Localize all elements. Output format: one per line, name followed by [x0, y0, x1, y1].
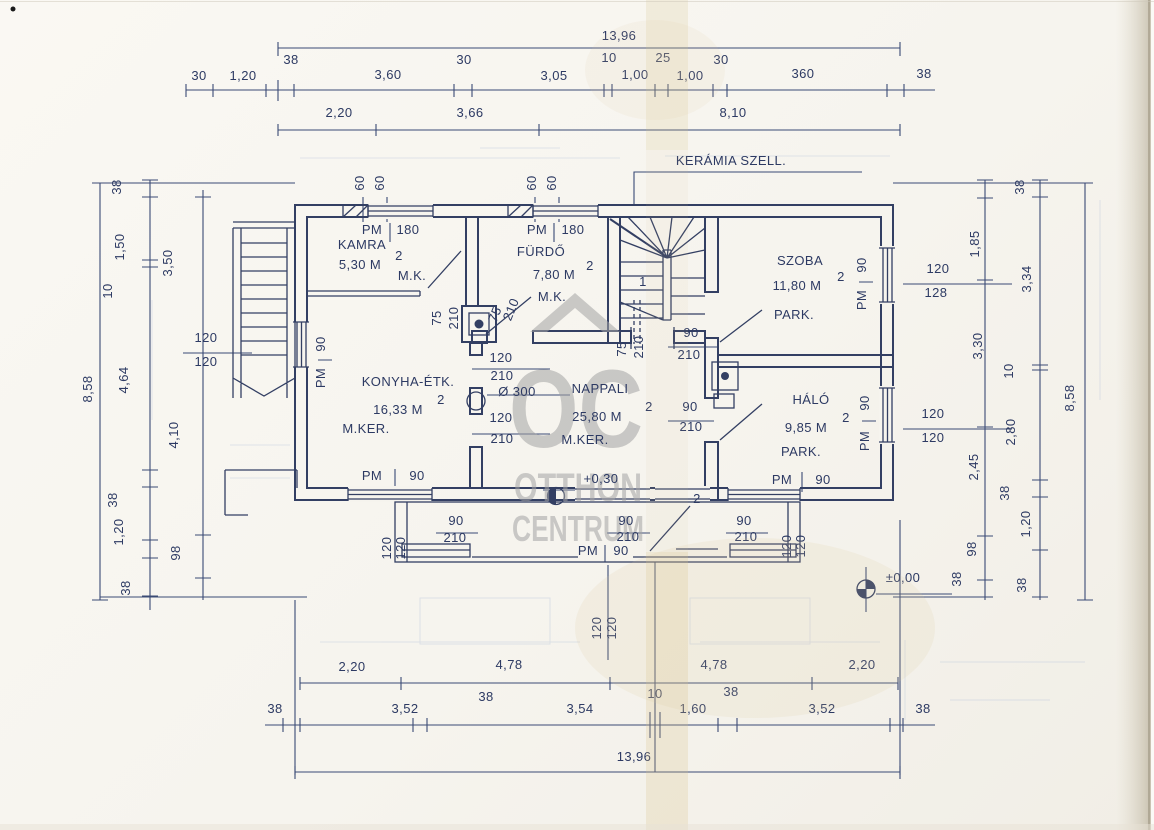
- room-floor-konyha: M.KER.: [342, 421, 389, 436]
- room-area-kamra: 5,30 M: [339, 257, 381, 272]
- sup: 2: [842, 410, 850, 425]
- dim-label: 38: [997, 485, 1012, 500]
- dim-label: 180: [397, 222, 420, 237]
- dim-label: 2,20: [326, 105, 353, 120]
- dim-label: PM: [362, 222, 382, 237]
- dim-label: 120: [393, 537, 408, 560]
- dim-label: 38: [1014, 577, 1029, 592]
- room-name-szoba: SZOBA: [777, 253, 823, 268]
- dim-label: 2,20: [339, 659, 366, 674]
- room-floor-furdo: M.K.: [538, 289, 566, 304]
- dim-label: 90: [409, 468, 424, 483]
- dim-label: PM: [313, 368, 328, 388]
- dim-label: 3,66: [457, 105, 484, 120]
- dim-label: 90: [613, 543, 628, 558]
- dim-label: 120: [195, 354, 218, 369]
- stair-number: 1: [639, 274, 647, 289]
- dim-label: 60: [544, 175, 559, 190]
- room-area-furdo: 7,80 M: [533, 267, 575, 282]
- room-area-halo: 9,85 M: [785, 420, 827, 435]
- dim-label: PM: [857, 431, 872, 451]
- dim-label: 90: [313, 336, 328, 351]
- room-floor-halo: PARK.: [781, 444, 821, 459]
- dim-label: 3,52: [392, 701, 419, 716]
- dim-label: 90: [815, 472, 830, 487]
- dim-label: 3,60: [375, 67, 402, 82]
- room-area-nappali: 25,80 M: [572, 409, 622, 424]
- dim-total-height-left: 8,58: [80, 376, 95, 403]
- room-name-halo: HÁLÓ: [792, 392, 829, 407]
- dim-label: 38: [478, 689, 493, 704]
- sup: 2: [837, 269, 845, 284]
- dim-label: 120: [490, 350, 513, 365]
- dim-label: 30: [456, 52, 471, 67]
- dim-label: 60: [352, 175, 367, 190]
- dim-label: 38: [915, 701, 930, 716]
- room-area-szoba: 11,80 M: [773, 278, 822, 293]
- room-floor-szoba: PARK.: [774, 307, 814, 322]
- dim-label: 180: [562, 222, 585, 237]
- dim-label: 38: [118, 580, 133, 595]
- dim-label: 60: [524, 175, 539, 190]
- floor-plan-drawing: OC OTTHON CENTRUM 13,96301,20383,60303,0…: [0, 0, 1154, 830]
- sup: 2: [586, 258, 594, 273]
- dim-label: 120: [490, 410, 513, 425]
- dim-label: 90: [448, 513, 463, 528]
- dim-label: 10: [1001, 363, 1016, 378]
- dim-label: 3,34: [1019, 266, 1034, 293]
- dim-label: 1,20: [111, 519, 126, 546]
- dim-label: 38: [916, 66, 931, 81]
- vent-label: KERÁMIA SZELL.: [676, 153, 786, 168]
- dim-label: 90: [618, 513, 633, 528]
- room-floor-kamra: M.K.: [398, 268, 426, 283]
- dim-label: 360: [792, 66, 815, 81]
- dim-label: 4,10: [166, 422, 181, 449]
- dim-label: 3,05: [541, 68, 568, 83]
- dim-label: 210: [631, 336, 646, 359]
- dim-label: 3,50: [160, 250, 175, 277]
- dim-label: 2,45: [966, 454, 981, 481]
- dim-label: 98: [168, 545, 183, 560]
- dim-label: 90: [854, 257, 869, 272]
- dim-label: 98: [964, 541, 979, 556]
- dim-label: 120: [922, 430, 945, 445]
- room-name-kamra: KAMRA: [338, 237, 386, 252]
- scan-speck: [11, 7, 16, 12]
- dim-label: 210: [617, 529, 640, 544]
- dim-label: 1,20: [1018, 511, 1033, 538]
- scanned-floor-plan-page: OC OTTHON CENTRUM 13,96301,20383,60303,0…: [0, 0, 1154, 830]
- door-number: 2: [693, 491, 701, 506]
- dim-label: 1,85: [967, 231, 982, 258]
- room-area-konyha: 16,33 M: [373, 402, 423, 417]
- dim-label: PM: [578, 543, 598, 558]
- dim-label: 75: [429, 310, 444, 325]
- dim-label: 38: [267, 701, 282, 716]
- dim-label: 128: [925, 285, 948, 300]
- dim-label: 4,64: [116, 367, 131, 394]
- dim-label: 210: [491, 431, 514, 446]
- dim-label: 120: [195, 330, 218, 345]
- dim-total-height-right: 8,58: [1062, 385, 1077, 412]
- dim-label: 120: [922, 406, 945, 421]
- dim-label: 30: [191, 68, 206, 83]
- dim-label: 2,80: [1003, 419, 1018, 446]
- dim-label: 38: [109, 179, 124, 194]
- room-floor-nappali: M.KER.: [561, 432, 608, 447]
- dim-label: 8,10: [720, 105, 747, 120]
- level-plus-030: +0,30: [584, 471, 619, 486]
- dim-label: 210: [444, 530, 467, 545]
- dim-label: 1,50: [112, 234, 127, 261]
- dim-label: 3,54: [567, 701, 594, 716]
- dim-label: PM: [527, 222, 547, 237]
- dim-label: 1,20: [230, 68, 257, 83]
- dim-label: 3,30: [970, 333, 985, 360]
- dim-label: 90: [736, 513, 751, 528]
- dim-label: 210: [491, 368, 514, 383]
- dim-label: 75: [614, 341, 629, 356]
- room-name-nappali: NAPPALI: [572, 381, 629, 396]
- dim-label: 38: [1012, 179, 1027, 194]
- dim-label: 60: [372, 175, 387, 190]
- dim-label: PM: [772, 472, 792, 487]
- dim-label: 210: [500, 296, 522, 323]
- sup: 2: [437, 392, 445, 407]
- room-name-konyha: KONYHA-ÉTK.: [362, 374, 455, 389]
- dim-label: PM: [362, 468, 382, 483]
- dim-label: 10: [100, 283, 115, 298]
- dim-label: 120: [379, 537, 394, 560]
- dim-label: 38: [283, 52, 298, 67]
- sup: 2: [395, 248, 403, 263]
- room-name-furdo: FÜRDŐ: [517, 244, 565, 259]
- dim-label: 38: [949, 571, 964, 586]
- dim-label: 120: [927, 261, 950, 276]
- column-dim: Ø 300: [498, 384, 535, 399]
- watermark-line1: OTTHON: [514, 466, 642, 510]
- dim-label: 210: [446, 307, 461, 330]
- dim-label: PM: [854, 290, 869, 310]
- dim-label: 38: [105, 492, 120, 507]
- dim-label: 90: [857, 395, 872, 410]
- dim-label: 4,78: [496, 657, 523, 672]
